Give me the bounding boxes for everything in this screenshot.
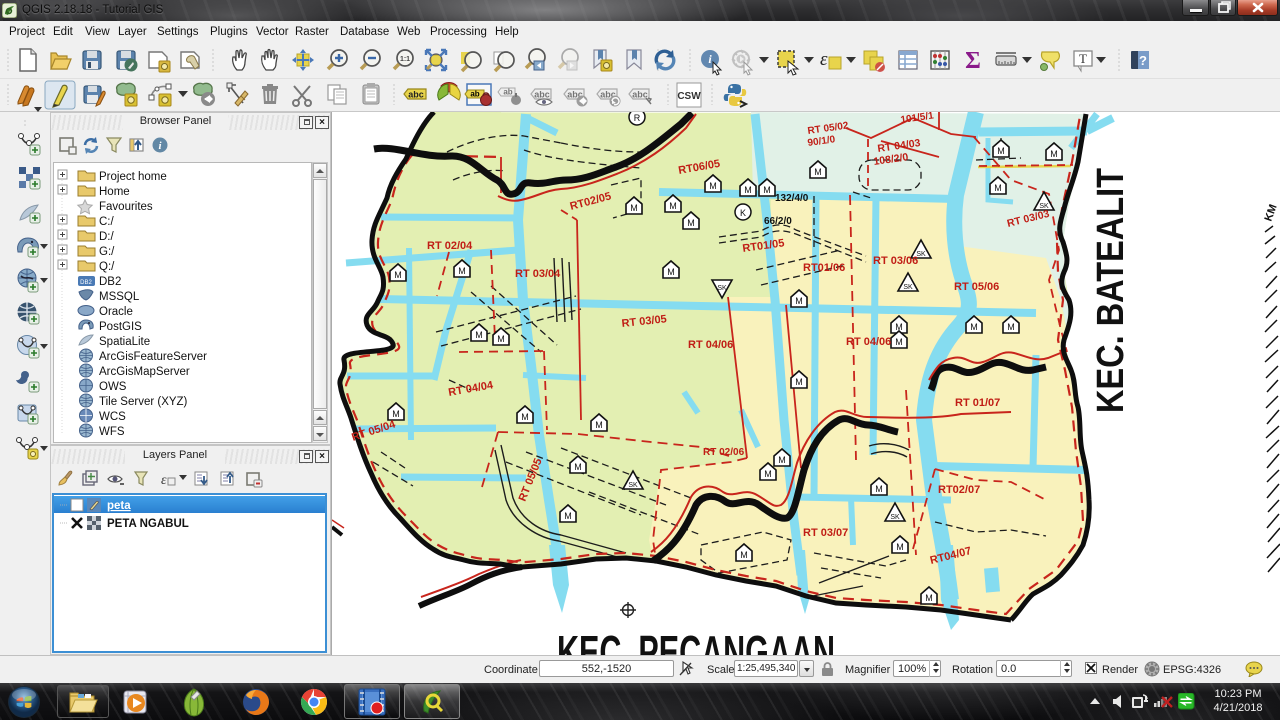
svg-text:OWS: OWS bbox=[99, 381, 127, 393]
svg-text:WFS: WFS bbox=[99, 426, 125, 438]
svg-text:Home: Home bbox=[99, 186, 130, 198]
svg-text:?: ? bbox=[1139, 53, 1147, 68]
svg-text:G:/: G:/ bbox=[99, 246, 115, 258]
svg-text:PostGIS: PostGIS bbox=[99, 321, 142, 333]
svg-text:R: R bbox=[634, 113, 641, 123]
svg-text:K: K bbox=[740, 208, 746, 218]
svg-text:WCS: WCS bbox=[99, 411, 126, 423]
svg-text:RT01/06: RT01/06 bbox=[803, 262, 845, 274]
svg-text:RT02/07: RT02/07 bbox=[938, 484, 980, 496]
svg-text:Project home: Project home bbox=[99, 171, 167, 183]
svg-text:RT 02/06: RT 02/06 bbox=[703, 447, 745, 458]
svg-text:D:/: D:/ bbox=[99, 231, 115, 243]
svg-text:KEC. BATEALIT: KEC. BATEALIT bbox=[1090, 168, 1132, 413]
svg-text:KEC. PECANGAAN: KEC. PECANGAAN bbox=[557, 626, 835, 655]
svg-text:ε: ε bbox=[161, 473, 167, 488]
svg-text:RT 03/07: RT 03/07 bbox=[803, 527, 848, 539]
svg-text:RT 05/06: RT 05/06 bbox=[954, 281, 999, 293]
svg-text:66/2/0: 66/2/0 bbox=[764, 216, 792, 227]
svg-text:RT 03/06: RT 03/06 bbox=[873, 255, 918, 267]
svg-text:RT 01/07: RT 01/07 bbox=[955, 397, 1000, 409]
svg-text:ab: ab bbox=[503, 88, 512, 97]
svg-text:T: T bbox=[1079, 51, 1087, 66]
svg-text:1:1: 1:1 bbox=[400, 56, 410, 63]
svg-text:RT 02/04: RT 02/04 bbox=[427, 240, 473, 252]
svg-text:CSW: CSW bbox=[677, 91, 701, 102]
svg-text:Σ: Σ bbox=[965, 48, 981, 74]
svg-text:132/4/0: 132/4/0 bbox=[775, 193, 809, 204]
svg-text:Favourites: Favourites bbox=[99, 201, 153, 213]
svg-text:RT 04/06: RT 04/06 bbox=[688, 339, 733, 351]
svg-text:SpatiaLite: SpatiaLite bbox=[99, 336, 150, 348]
svg-text:Tile Server (XYZ): Tile Server (XYZ) bbox=[99, 396, 188, 408]
svg-text:RT 04/06: RT 04/06 bbox=[846, 336, 891, 348]
svg-text:ArcGisMapServer: ArcGisMapServer bbox=[99, 366, 190, 378]
svg-text:Q:/: Q:/ bbox=[99, 261, 115, 273]
svg-text:DB2: DB2 bbox=[80, 280, 92, 286]
svg-text:DB2: DB2 bbox=[99, 276, 121, 288]
svg-text:ε: ε bbox=[820, 49, 828, 70]
svg-text:PETA NGABUL: PETA NGABUL bbox=[107, 518, 189, 530]
svg-text:peta: peta bbox=[107, 500, 131, 512]
svg-text:Oracle: Oracle bbox=[99, 306, 133, 318]
svg-text:MSSQL: MSSQL bbox=[99, 291, 140, 303]
svg-text:C:/: C:/ bbox=[99, 216, 115, 228]
svg-text:ab: ab bbox=[470, 90, 479, 99]
svg-text:RT 03/04: RT 03/04 bbox=[515, 268, 561, 280]
svg-text:ArcGisFeatureServer: ArcGisFeatureServer bbox=[99, 351, 207, 363]
